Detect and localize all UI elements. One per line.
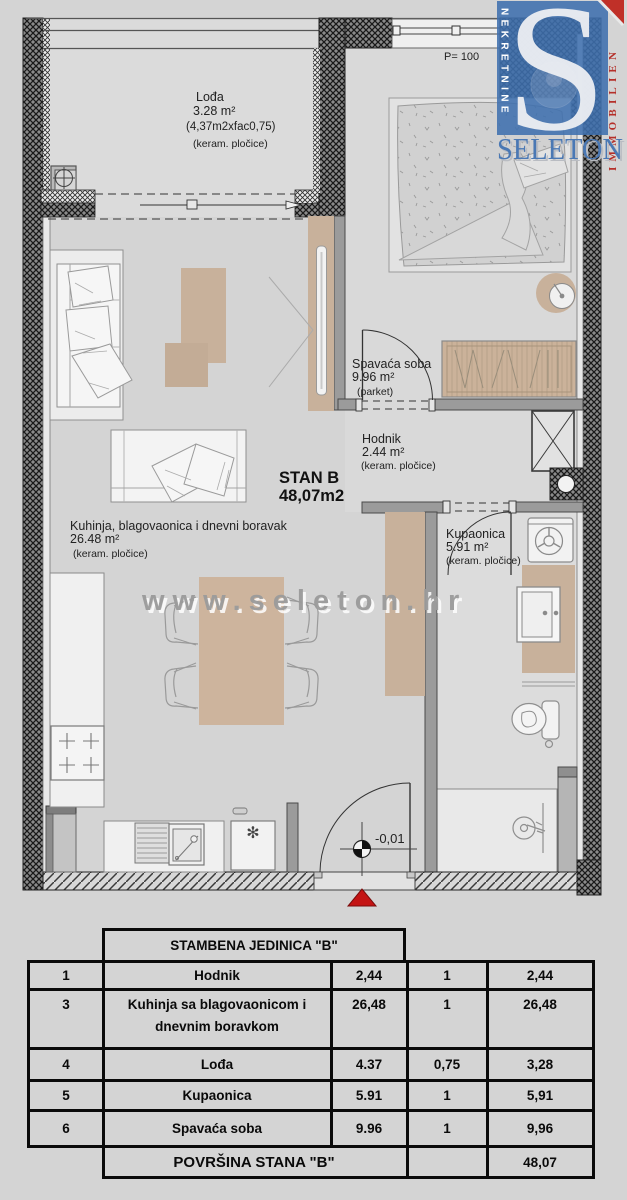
svg-text:dnevnim boravkom: dnevnim boravkom bbox=[155, 1019, 279, 1034]
svg-text:(keram. pločice): (keram. pločice) bbox=[361, 460, 436, 472]
svg-text:-0,01: -0,01 bbox=[375, 831, 405, 846]
svg-text:SELETON: SELETON bbox=[497, 131, 623, 166]
svg-text:48,07: 48,07 bbox=[523, 1155, 557, 1170]
svg-text:4: 4 bbox=[62, 1057, 70, 1072]
svg-text:1: 1 bbox=[62, 968, 70, 983]
svg-text:4.37: 4.37 bbox=[356, 1057, 382, 1072]
svg-text:(keram. pločice): (keram. pločice) bbox=[446, 555, 521, 567]
svg-text:26,48: 26,48 bbox=[352, 997, 386, 1012]
svg-text:2.44 m²: 2.44 m² bbox=[362, 445, 404, 459]
svg-text:POVRŠINA STANA "B": POVRŠINA STANA "B" bbox=[173, 1153, 334, 1171]
svg-text:NEKRETNINE: NEKRETNINE bbox=[499, 8, 510, 117]
svg-text:Kupaonica: Kupaonica bbox=[446, 527, 505, 541]
svg-text:5: 5 bbox=[62, 1088, 70, 1103]
svg-text:Kuhinja sa blagovaonicom i: Kuhinja sa blagovaonicom i bbox=[128, 997, 307, 1012]
svg-text:9.96: 9.96 bbox=[356, 1121, 383, 1136]
svg-text:0,75: 0,75 bbox=[434, 1057, 461, 1072]
svg-text:Spavaća soba: Spavaća soba bbox=[172, 1121, 263, 1136]
svg-text:2,44: 2,44 bbox=[527, 968, 554, 983]
svg-text:Kupaonica: Kupaonica bbox=[182, 1088, 252, 1103]
svg-text:1: 1 bbox=[443, 1088, 451, 1103]
svg-text:Hodnik: Hodnik bbox=[194, 968, 240, 983]
svg-text:6: 6 bbox=[62, 1121, 70, 1136]
svg-text:2,44: 2,44 bbox=[356, 968, 383, 983]
svg-text:9,96: 9,96 bbox=[527, 1121, 554, 1136]
svg-text:Lođa: Lođa bbox=[196, 90, 224, 104]
svg-text:9.96 m²: 9.96 m² bbox=[352, 370, 394, 384]
svg-text:Lođa: Lođa bbox=[201, 1057, 234, 1072]
svg-text:5.91: 5.91 bbox=[356, 1088, 383, 1103]
svg-text:3,28: 3,28 bbox=[527, 1057, 554, 1072]
svg-text:Hodnik: Hodnik bbox=[362, 432, 402, 446]
svg-text:(parket): (parket) bbox=[357, 386, 393, 398]
svg-text:1: 1 bbox=[443, 997, 451, 1012]
svg-text:1: 1 bbox=[443, 1121, 451, 1136]
svg-text:Spavaća soba: Spavaća soba bbox=[352, 357, 431, 371]
svg-text:Kuhinja, blagovaonica i dnevni: Kuhinja, blagovaonica i dnevni boravak bbox=[70, 519, 288, 533]
svg-text:1: 1 bbox=[443, 968, 451, 983]
svg-text:3.28 m²: 3.28 m² bbox=[193, 104, 235, 118]
svg-text:✻: ✻ bbox=[246, 825, 259, 842]
svg-text:48,07m2: 48,07m2 bbox=[279, 487, 344, 505]
svg-text:26,48: 26,48 bbox=[523, 997, 557, 1012]
svg-text:(keram. pločice): (keram. pločice) bbox=[73, 548, 148, 560]
svg-text:3: 3 bbox=[62, 997, 70, 1012]
svg-text:(keram. pločice): (keram. pločice) bbox=[193, 138, 268, 150]
svg-text:26.48 m²: 26.48 m² bbox=[70, 532, 119, 546]
svg-text:(4,37m2xfac0,75): (4,37m2xfac0,75) bbox=[186, 121, 276, 133]
svg-text:STAMBENA JEDINICA "B": STAMBENA JEDINICA "B" bbox=[170, 938, 338, 953]
svg-text:STAN B: STAN B bbox=[279, 469, 339, 487]
svg-text:P= 100: P= 100 bbox=[444, 51, 479, 63]
svg-text:www.seleton.hr: www.seleton.hr bbox=[141, 585, 467, 617]
svg-text:5.91 m²: 5.91 m² bbox=[446, 540, 488, 554]
svg-text:5,91: 5,91 bbox=[527, 1088, 554, 1103]
